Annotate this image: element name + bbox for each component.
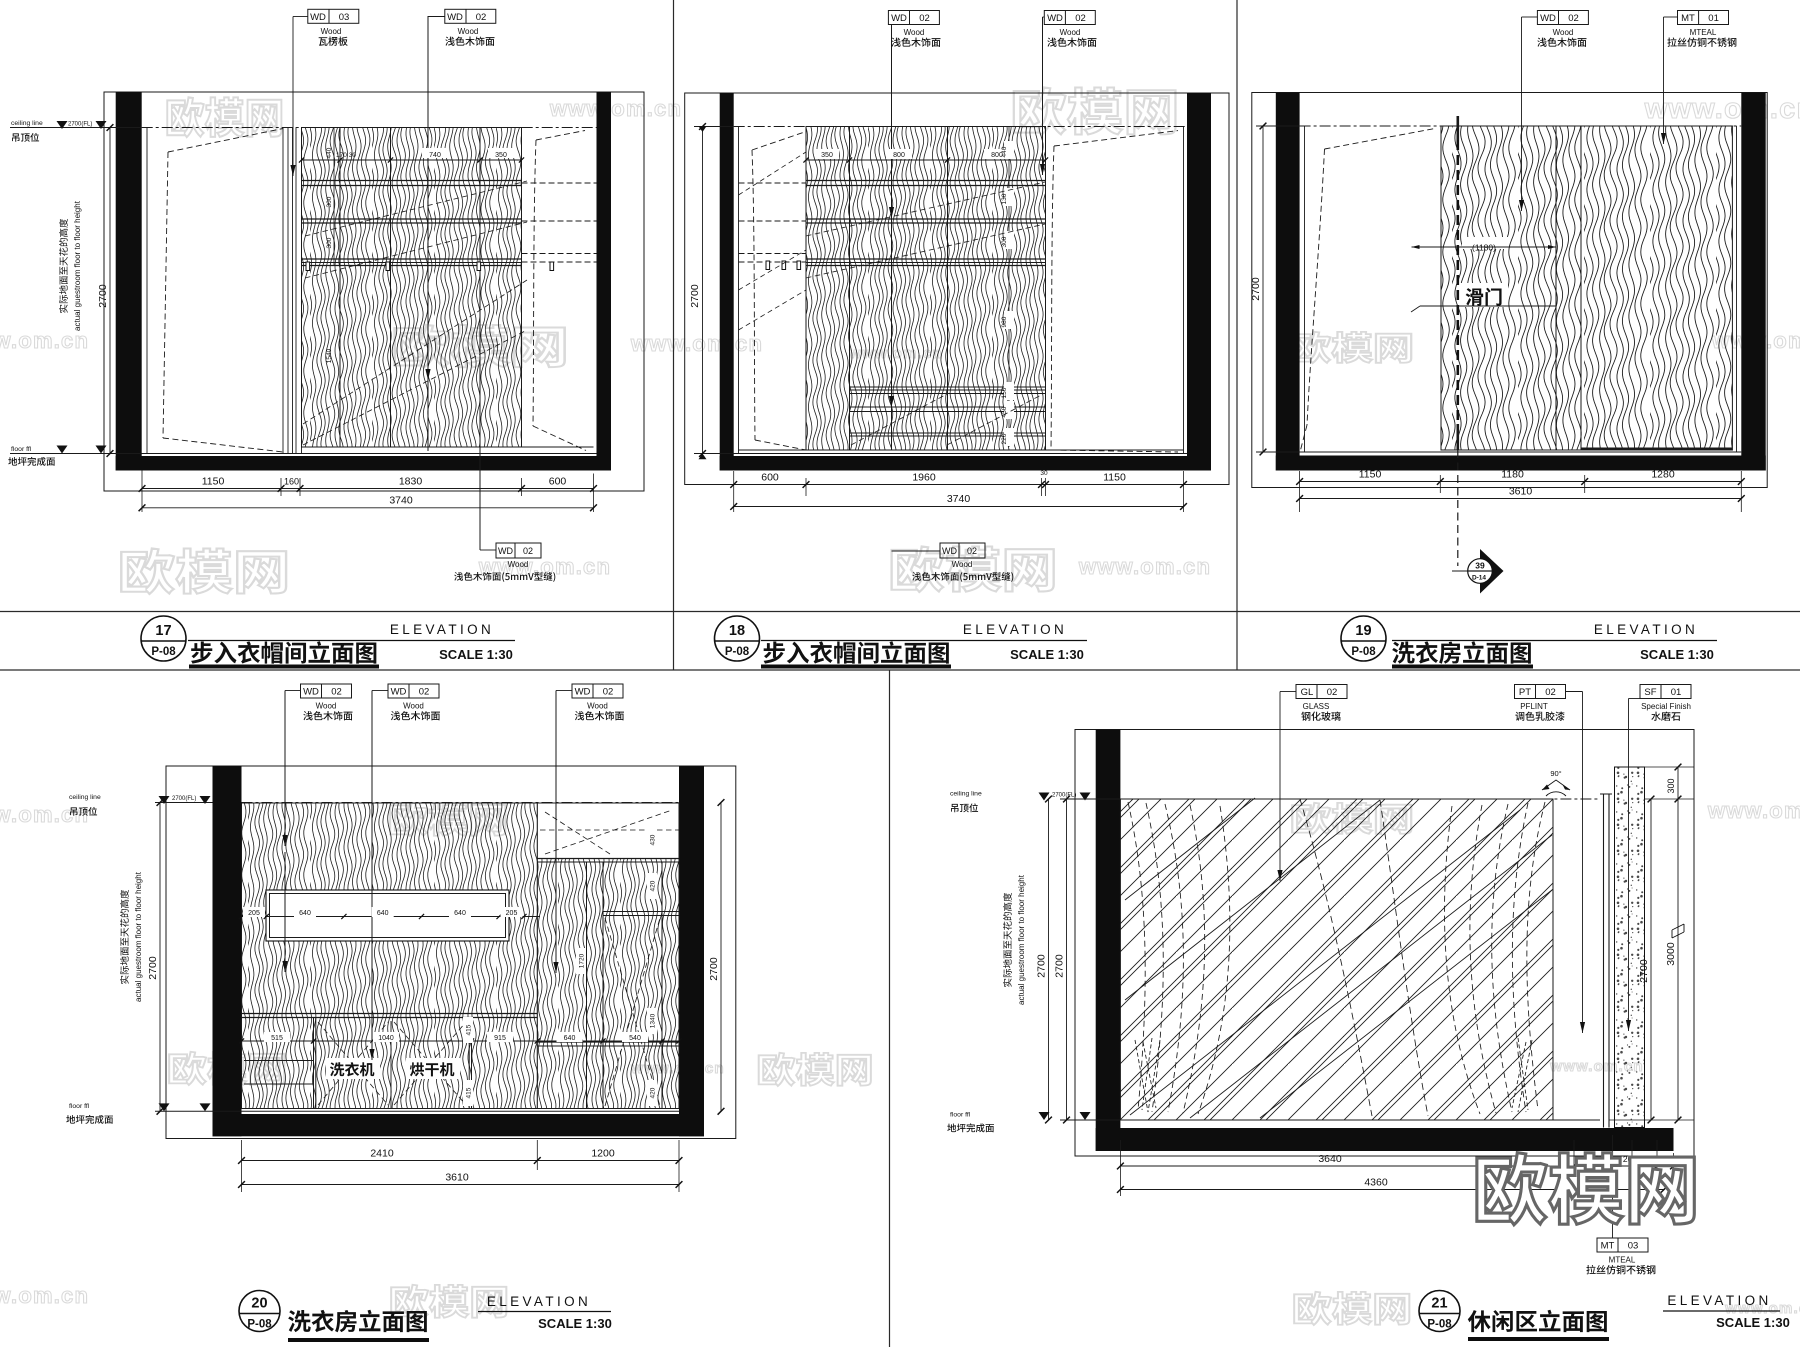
svg-text:www.om.cn: www.om.cn	[630, 331, 763, 356]
svg-text:PFLINT: PFLINT	[1520, 702, 1548, 711]
svg-text:WD: WD	[498, 546, 513, 556]
svg-text:WD: WD	[391, 687, 407, 698]
svg-text:ELEVATION: ELEVATION	[963, 622, 1067, 637]
svg-text:01: 01	[1708, 13, 1719, 24]
svg-text:540: 540	[629, 1035, 641, 1042]
svg-text:1150: 1150	[202, 476, 225, 488]
svg-text:Wood: Wood	[403, 702, 424, 711]
svg-text:SCALE 1:30: SCALE 1:30	[1640, 647, 1714, 662]
svg-text:2700: 2700	[1638, 959, 1650, 983]
svg-text:740: 740	[429, 152, 441, 159]
svg-text:2700: 2700	[97, 284, 109, 308]
svg-text:MTEAL: MTEAL	[1609, 1256, 1636, 1265]
svg-text:1960: 1960	[912, 472, 936, 484]
svg-text:P-08: P-08	[247, 1319, 272, 1331]
svg-text:130: 130	[1001, 193, 1008, 204]
svg-text:1830: 1830	[399, 476, 423, 488]
svg-text:3610: 3610	[1509, 486, 1533, 498]
svg-text:03: 03	[339, 12, 350, 23]
svg-text:3640: 3640	[1318, 1153, 1342, 1165]
svg-text:P-08: P-08	[1427, 1319, 1452, 1331]
svg-text:205: 205	[248, 910, 260, 917]
svg-text:SCALE 1:30: SCALE 1:30	[538, 1316, 612, 1331]
svg-text:515: 515	[271, 1035, 283, 1042]
svg-text:PT: PT	[1519, 687, 1531, 698]
svg-text:415: 415	[466, 1024, 473, 1035]
svg-text:SCALE 1:30: SCALE 1:30	[1010, 647, 1084, 662]
svg-text:WD: WD	[310, 12, 326, 23]
svg-text:2700(FL): 2700(FL)	[1052, 793, 1076, 799]
svg-text:350: 350	[821, 152, 833, 159]
svg-text:WD: WD	[891, 13, 907, 24]
svg-text:2700: 2700	[1250, 277, 1262, 301]
svg-text:640: 640	[377, 910, 389, 917]
svg-text:MTEAL: MTEAL	[1690, 28, 1717, 37]
svg-text:02: 02	[523, 546, 533, 556]
svg-text:300: 300	[1001, 236, 1008, 247]
svg-text:02: 02	[1327, 687, 1338, 698]
svg-text:www.om.cn: www.om.cn	[1707, 798, 1800, 823]
svg-text:Wood: Wood	[508, 560, 529, 569]
svg-text:800: 800	[893, 152, 905, 159]
svg-text:640: 640	[564, 1035, 576, 1042]
svg-text:Wood: Wood	[458, 27, 479, 36]
svg-text:2700: 2700	[1036, 954, 1048, 978]
svg-text:WD: WD	[1540, 13, 1556, 24]
svg-text:2700: 2700	[147, 956, 159, 980]
svg-text:1540: 1540	[326, 348, 333, 363]
svg-text:www.om.cn: www.om.cn	[1078, 554, 1211, 579]
svg-text:440: 440	[1001, 146, 1008, 157]
svg-text:2700(FL): 2700(FL)	[68, 122, 92, 128]
svg-text:02: 02	[603, 687, 614, 698]
svg-text:18: 18	[729, 623, 745, 639]
svg-text:600: 600	[761, 472, 779, 484]
svg-text:Wood: Wood	[1060, 28, 1081, 37]
svg-text:640: 640	[454, 910, 466, 917]
svg-text:1180: 1180	[1501, 469, 1524, 481]
svg-text:WD: WD	[1047, 13, 1063, 24]
svg-text:WD: WD	[575, 687, 591, 698]
svg-text:www.om.cn: www.om.cn	[1644, 93, 1800, 125]
svg-text:MT: MT	[1681, 13, 1695, 24]
svg-text:WD: WD	[303, 687, 319, 698]
svg-text:1150: 1150	[1103, 472, 1126, 484]
svg-text:300: 300	[1666, 778, 1676, 793]
svg-text:1340: 1340	[650, 1013, 657, 1028]
svg-text:3740: 3740	[389, 495, 413, 507]
svg-text:ceiling line: ceiling line	[950, 791, 982, 798]
svg-text:SCALE 1:30: SCALE 1:30	[439, 647, 513, 662]
svg-text:floor ffl: floor ffl	[11, 446, 32, 453]
svg-text:2700: 2700	[689, 284, 701, 308]
svg-text:Wood: Wood	[1553, 28, 1574, 37]
svg-text:02: 02	[419, 687, 430, 698]
svg-text:ceiling line: ceiling line	[69, 794, 101, 801]
svg-text:1200: 1200	[591, 1148, 615, 1160]
svg-text:440: 440	[326, 147, 333, 158]
svg-text:www.om.cn: www.om.cn	[0, 1283, 89, 1308]
svg-text:actual guestroom floor to floo: actual guestroom floor to floor height	[73, 200, 82, 331]
svg-text:Wood: Wood	[316, 702, 337, 711]
svg-text:300: 300	[326, 196, 333, 207]
svg-text:19: 19	[1355, 623, 1371, 639]
svg-text:floor ffl: floor ffl	[950, 1112, 971, 1119]
svg-text:430: 430	[650, 834, 657, 845]
svg-text:P-08: P-08	[1351, 646, 1376, 658]
svg-text:Wood: Wood	[587, 702, 608, 711]
svg-text:Wood: Wood	[321, 27, 342, 36]
svg-text:02: 02	[919, 13, 930, 24]
svg-text:420: 420	[650, 880, 657, 891]
svg-text:3740: 3740	[947, 493, 971, 505]
svg-text:300: 300	[326, 237, 333, 248]
svg-text:30: 30	[1040, 470, 1048, 477]
svg-text:P-08: P-08	[151, 646, 176, 658]
svg-text:Wood: Wood	[904, 28, 925, 37]
svg-text:39: 39	[1475, 561, 1485, 571]
svg-text:WD: WD	[447, 12, 463, 23]
svg-text:3000: 3000	[1665, 942, 1677, 966]
svg-text:1720: 1720	[579, 953, 586, 968]
svg-text:GL: GL	[1301, 687, 1314, 698]
svg-text:640: 640	[299, 910, 311, 917]
svg-text:Wood: Wood	[952, 560, 973, 569]
svg-text:1150: 1150	[1359, 469, 1382, 481]
svg-text:415: 415	[466, 1087, 473, 1098]
svg-text:420: 420	[650, 1087, 657, 1098]
svg-text:03: 03	[1628, 1241, 1639, 1252]
svg-text:MT: MT	[1601, 1241, 1615, 1252]
svg-text:170 30: 170 30	[336, 152, 356, 159]
svg-text:20: 20	[251, 1296, 267, 1312]
svg-text:floor ffl: floor ffl	[69, 1103, 90, 1110]
svg-text:WD: WD	[942, 546, 957, 556]
svg-text:D-14: D-14	[1472, 575, 1486, 582]
svg-text:actual guestroom floor to floo: actual guestroom floor to floor height	[134, 871, 143, 1002]
svg-text:SF: SF	[1644, 687, 1656, 698]
svg-text:ceiling line: ceiling line	[11, 120, 43, 127]
svg-text:21: 21	[1431, 1296, 1447, 1312]
svg-text:SCALE 1:30: SCALE 1:30	[1716, 1315, 1790, 1330]
svg-text:350: 350	[495, 152, 507, 159]
svg-text:ELEVATION: ELEVATION	[1667, 1293, 1771, 1308]
svg-text:ELEVATION: ELEVATION	[487, 1294, 591, 1309]
svg-text:02: 02	[1075, 13, 1086, 24]
svg-text:600: 600	[549, 476, 567, 488]
svg-text:915: 915	[494, 1035, 506, 1042]
svg-text:17: 17	[155, 623, 171, 639]
svg-text:02: 02	[331, 687, 342, 698]
svg-text:3610: 3610	[445, 1172, 469, 1184]
svg-text:2700: 2700	[708, 957, 720, 981]
svg-text:P-08: P-08	[725, 646, 750, 658]
svg-text:160: 160	[284, 477, 299, 487]
svg-text:ELEVATION: ELEVATION	[390, 622, 494, 637]
svg-text:980: 980	[1001, 316, 1008, 327]
svg-text:01: 01	[1671, 687, 1682, 698]
svg-text:02: 02	[476, 12, 487, 23]
svg-text:90°: 90°	[1550, 769, 1561, 778]
svg-text:150: 150	[1001, 387, 1008, 398]
svg-text:2700(FL): 2700(FL)	[172, 796, 196, 802]
svg-text:220: 220	[1001, 433, 1008, 444]
svg-text:4360: 4360	[1364, 1177, 1388, 1189]
svg-text:(1180): (1180)	[1472, 243, 1496, 253]
svg-text:02: 02	[1545, 687, 1556, 698]
svg-text:02: 02	[1568, 13, 1579, 24]
svg-text:1280: 1280	[1651, 469, 1675, 481]
svg-text:1040: 1040	[378, 1035, 394, 1042]
svg-text:205: 205	[506, 910, 518, 917]
svg-text:ELEVATION: ELEVATION	[1594, 622, 1698, 637]
svg-text:actual guestroom floor to floo: actual guestroom floor to floor height	[1017, 874, 1026, 1005]
svg-text:GLASS: GLASS	[1303, 702, 1330, 711]
svg-text:2410: 2410	[370, 1148, 394, 1160]
svg-text:2700: 2700	[1054, 954, 1066, 978]
svg-text:450: 450	[1001, 406, 1008, 417]
svg-text:02: 02	[967, 546, 977, 556]
svg-text:Special Finish: Special Finish	[1641, 702, 1691, 711]
svg-text:www.om.cn: www.om.cn	[549, 96, 682, 121]
